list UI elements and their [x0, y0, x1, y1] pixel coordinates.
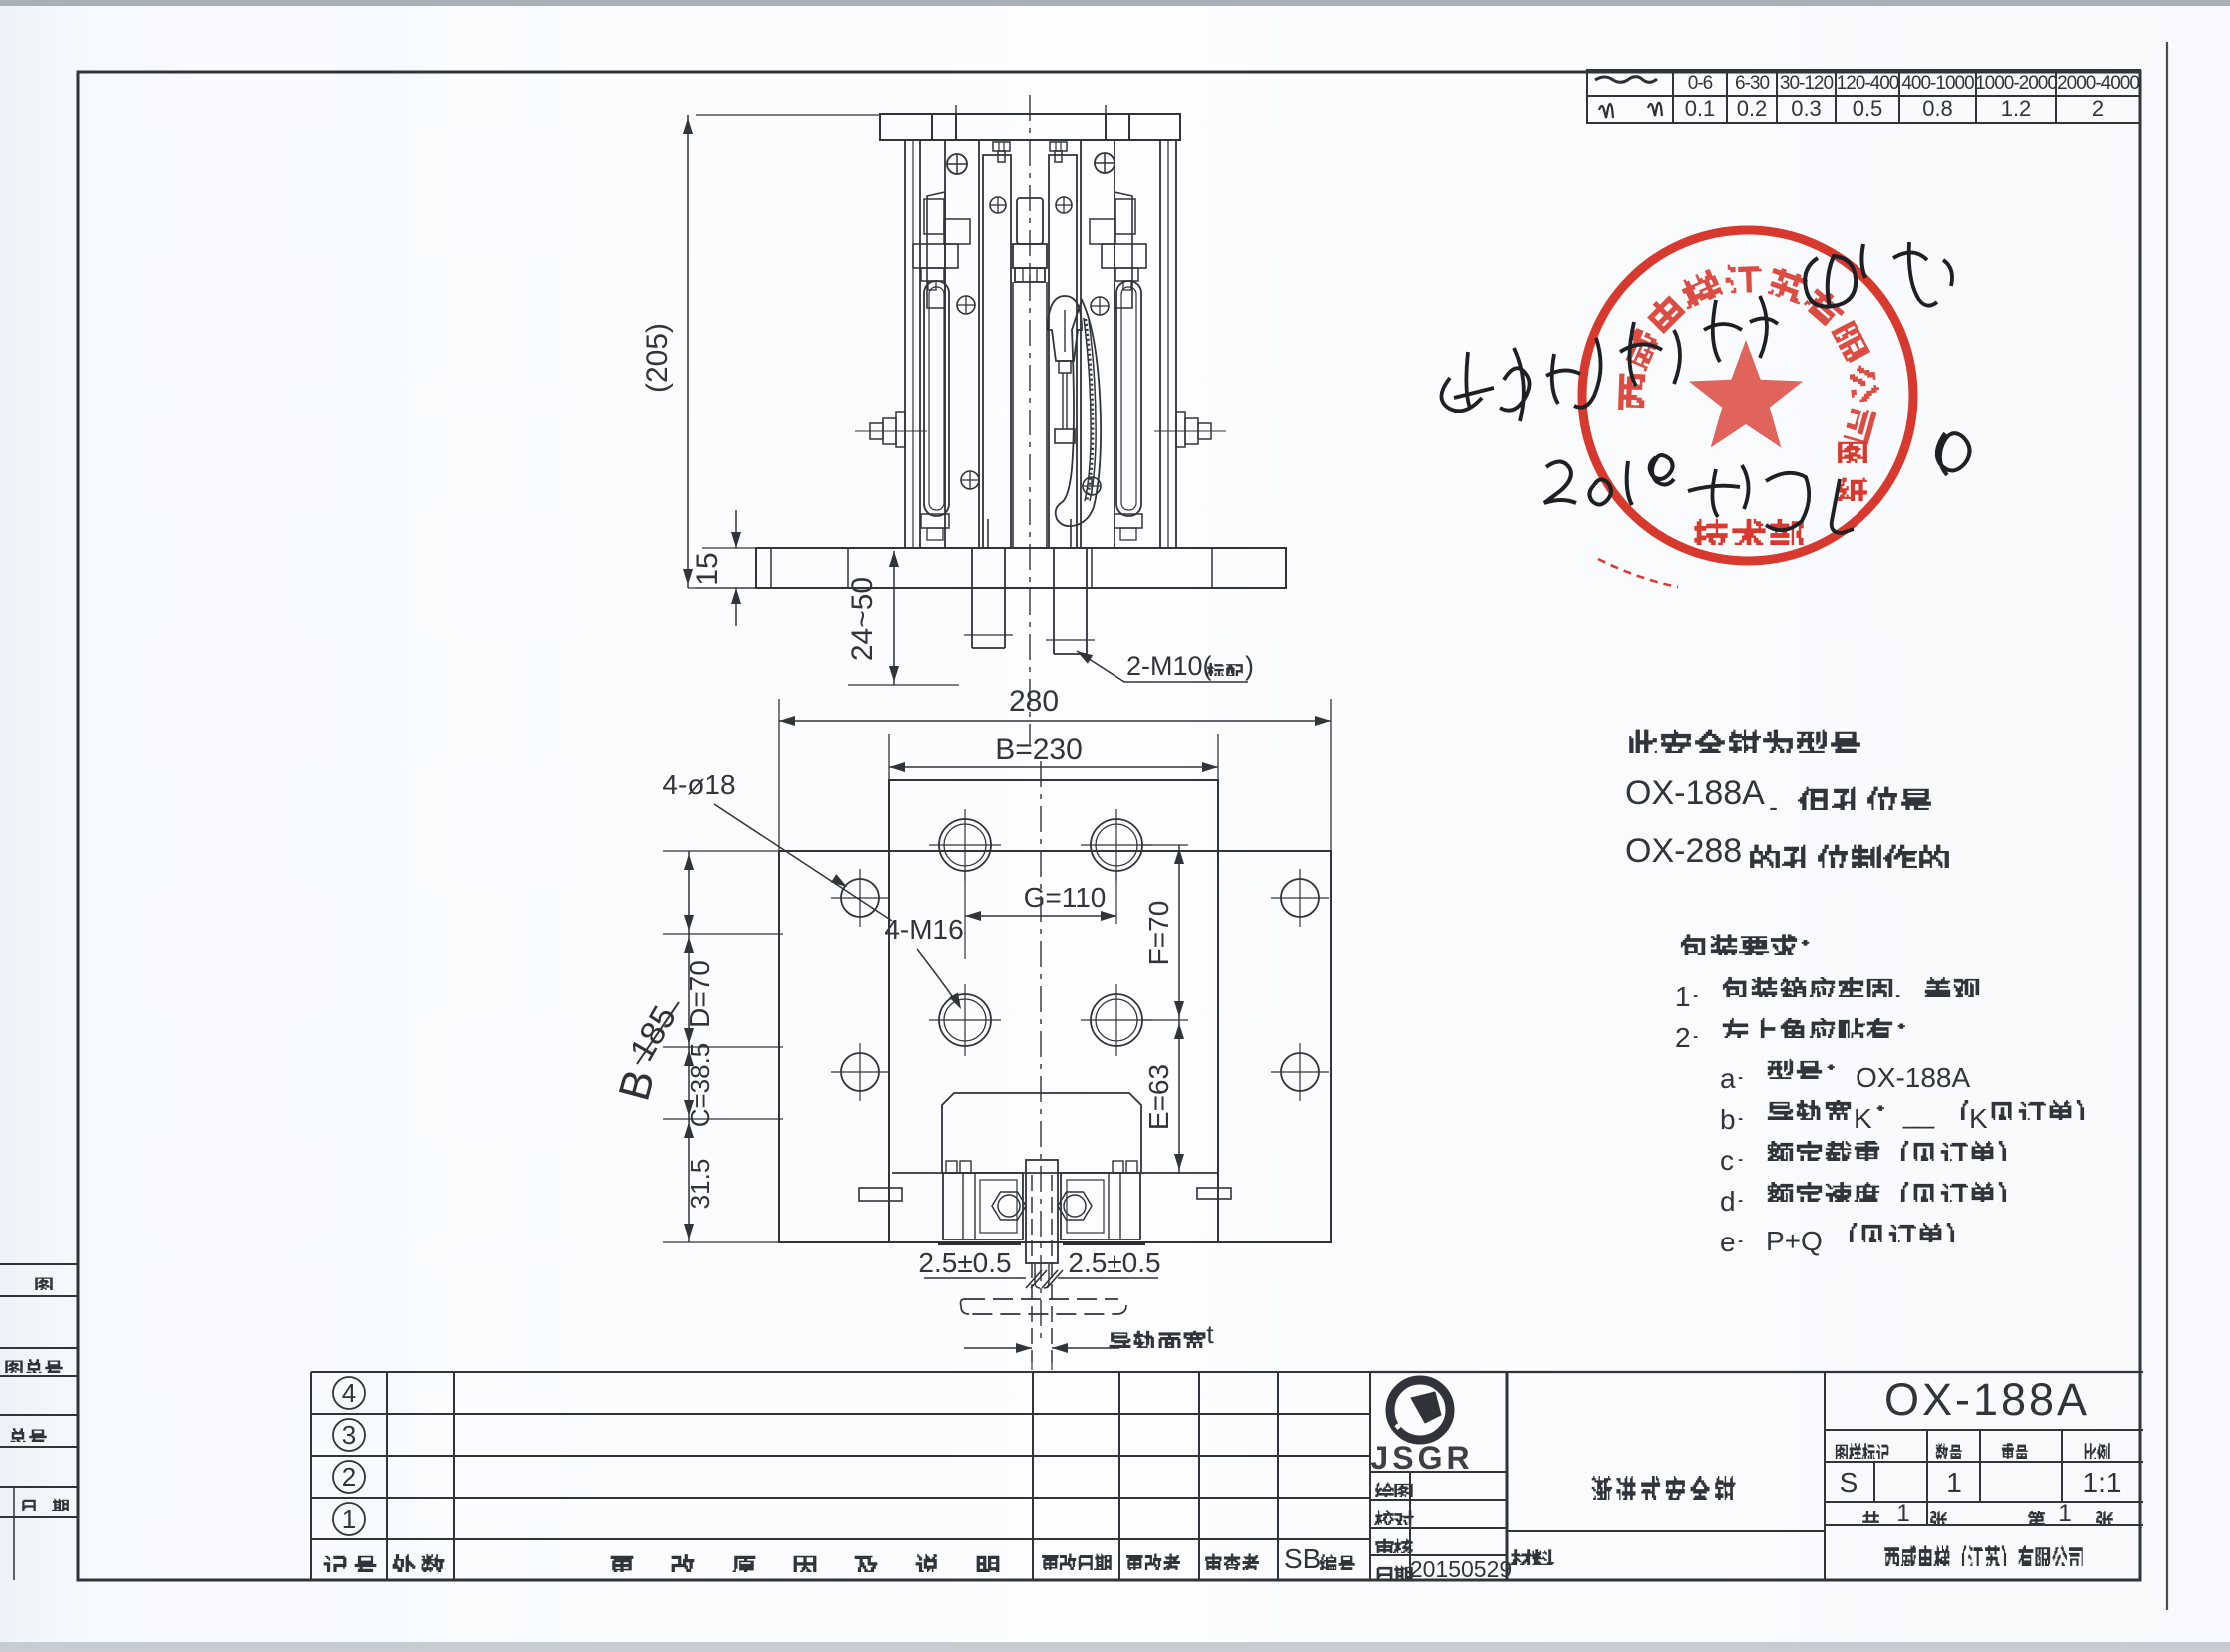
svg-text:4: 4	[342, 1378, 356, 1408]
svg-text:S: S	[1840, 1467, 1858, 1498]
svg-text:1: 1	[1896, 1500, 1909, 1527]
svg-text:D=70: D=70	[684, 960, 715, 1028]
svg-text:2.5±0.5: 2.5±0.5	[918, 1247, 1011, 1278]
svg-text:1: 1	[1675, 981, 1691, 1012]
svg-text:__: __	[1902, 1098, 1935, 1129]
svg-text:P+Q: P+Q	[1766, 1226, 1823, 1256]
svg-text:OX-288: OX-288	[1625, 832, 1742, 870]
svg-text:B=230: B=230	[995, 733, 1083, 766]
svg-text:SB: SB	[1284, 1543, 1321, 1574]
svg-text:4-ø18: 4-ø18	[662, 769, 735, 800]
svg-text:OX-188A: OX-188A	[1884, 1374, 2090, 1425]
svg-text:4-M16: 4-M16	[884, 914, 963, 945]
svg-text:0.1: 0.1	[1685, 96, 1716, 121]
svg-text:t: t	[1206, 1319, 1214, 1349]
svg-text:c: c	[1720, 1145, 1734, 1176]
svg-text:OX-188A: OX-188A	[1856, 1062, 1970, 1093]
svg-text:0.5: 0.5	[1853, 96, 1883, 121]
svg-text:400-1000: 400-1000	[1901, 73, 1974, 94]
svg-text:E=63: E=63	[1143, 1064, 1174, 1130]
svg-text:6-30: 6-30	[1735, 73, 1769, 94]
svg-text:B: B	[610, 1065, 665, 1106]
svg-text:b: b	[1720, 1104, 1736, 1135]
svg-text:0-6: 0-6	[1688, 73, 1713, 94]
svg-text:a: a	[1720, 1063, 1736, 1094]
svg-text:C=38.5: C=38.5	[685, 1043, 715, 1128]
svg-text:): )	[1245, 651, 1254, 681]
svg-text:20150529: 20150529	[1410, 1556, 1512, 1582]
svg-text:0.3: 0.3	[1791, 96, 1822, 121]
svg-text:1.2: 1.2	[2001, 96, 2032, 121]
svg-text:2: 2	[1675, 1022, 1691, 1053]
svg-text:2: 2	[342, 1462, 356, 1492]
svg-text:2.5±0.5: 2.5±0.5	[1068, 1247, 1160, 1278]
svg-text:JSGR: JSGR	[1370, 1440, 1473, 1476]
svg-text:2: 2	[2092, 96, 2104, 121]
svg-text:OX-188A: OX-188A	[1625, 774, 1765, 812]
svg-text:2-M10(: 2-M10(	[1126, 651, 1212, 681]
svg-text:d: d	[1720, 1186, 1736, 1217]
svg-text:15: 15	[691, 552, 724, 585]
svg-text:1: 1	[2058, 1500, 2071, 1527]
svg-text:30-120: 30-120	[1780, 73, 1834, 94]
svg-text:280: 280	[1009, 685, 1059, 718]
svg-text:F=70: F=70	[1143, 901, 1174, 966]
svg-text:1:1: 1:1	[2083, 1467, 2122, 1498]
svg-text:2000-4000: 2000-4000	[2057, 73, 2139, 94]
svg-text:31.5: 31.5	[685, 1159, 715, 1210]
svg-text:G=110: G=110	[1024, 882, 1107, 913]
svg-text:K: K	[1969, 1103, 1988, 1134]
svg-text:e: e	[1720, 1227, 1736, 1257]
svg-text:1: 1	[1946, 1467, 1962, 1498]
svg-text:24~50: 24~50	[846, 577, 879, 661]
svg-text:(205): (205)	[641, 323, 674, 393]
svg-text:3: 3	[342, 1420, 356, 1450]
svg-text:120-400: 120-400	[1837, 73, 1899, 94]
svg-text:1000-2000: 1000-2000	[1975, 73, 2057, 94]
svg-text:0.2: 0.2	[1737, 96, 1768, 121]
svg-text:0.8: 0.8	[1922, 96, 1953, 121]
svg-text:K: K	[1854, 1103, 1872, 1134]
svg-text:1: 1	[342, 1504, 356, 1534]
